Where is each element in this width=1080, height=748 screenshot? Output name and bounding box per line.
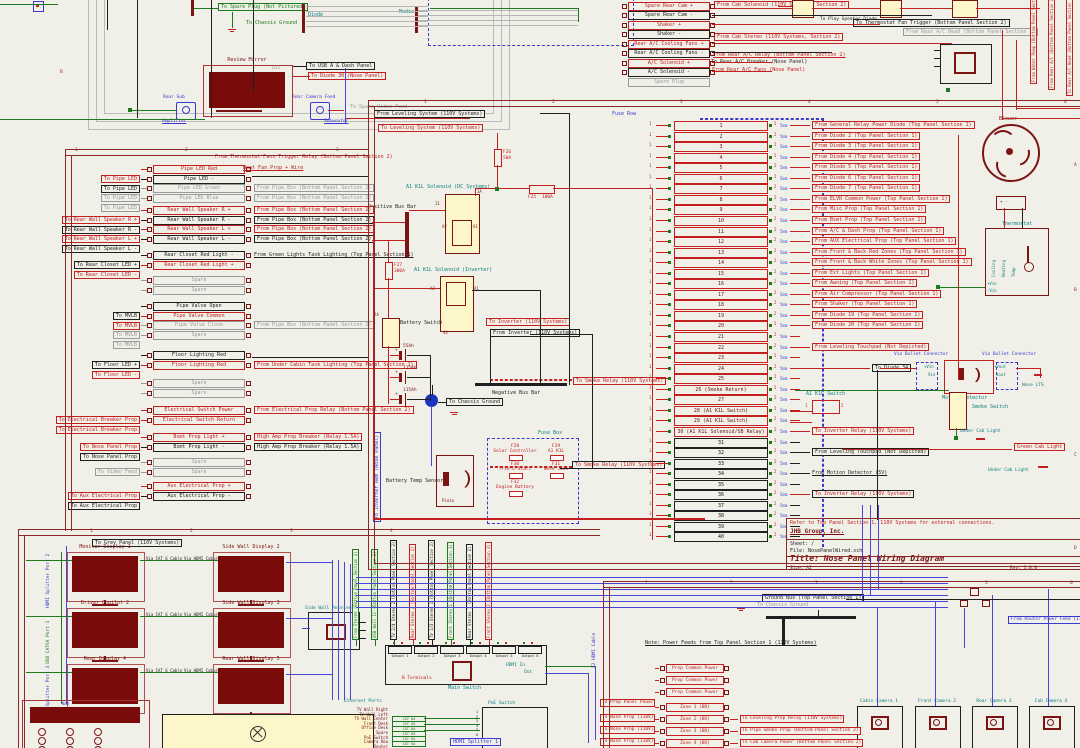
connector-pin-icon bbox=[182, 106, 190, 114]
wire bbox=[1002, 118, 1080, 119]
wire bbox=[356, 607, 948, 608]
camera-lens-icon bbox=[1047, 719, 1054, 726]
pin-number: 2 bbox=[774, 258, 776, 263]
pin bbox=[724, 741, 729, 746]
terminal-box: Rear Wall Speaker R + bbox=[153, 206, 245, 215]
pin bbox=[769, 314, 772, 317]
wire-gauge: 5mm bbox=[780, 334, 787, 339]
coil bbox=[452, 220, 472, 246]
fuse-terminal: 8 bbox=[674, 195, 768, 205]
wire bbox=[790, 515, 800, 516]
wire-gauge: 5mm bbox=[780, 355, 787, 360]
pin bbox=[668, 240, 671, 243]
pin-number: 2 bbox=[774, 184, 776, 189]
global-label-usb: To USB A & Dash Panel bbox=[306, 62, 375, 70]
global-label: From Pipe Box (Bottom Panel Section 2) bbox=[254, 225, 374, 233]
wire bbox=[656, 347, 668, 348]
terminal-box: Zone 4 (BR) bbox=[666, 739, 724, 748]
wire bbox=[656, 336, 668, 337]
wire bbox=[140, 560, 218, 561]
pin bbox=[660, 690, 665, 695]
component-label: PoE Switch bbox=[488, 701, 515, 707]
pin bbox=[769, 472, 772, 475]
component-ref: U12 bbox=[272, 66, 280, 72]
wire bbox=[790, 452, 810, 453]
wire bbox=[1022, 208, 1023, 228]
wire-gauge: 5mm bbox=[780, 313, 787, 318]
pin-number: 2 bbox=[774, 279, 776, 284]
pin bbox=[710, 32, 715, 37]
wire bbox=[338, 560, 339, 700]
global-label: From Diode 19 (Top Panel Section 1) bbox=[812, 311, 923, 319]
wire bbox=[656, 231, 668, 232]
pin bbox=[660, 705, 665, 710]
wire bbox=[388, 346, 389, 404]
global-label: From Cab Stereo (110V Systems, Section 2… bbox=[714, 33, 843, 41]
pin bbox=[660, 717, 665, 722]
wire bbox=[935, 601, 936, 706]
wire bbox=[934, 50, 940, 51]
pin bbox=[769, 293, 772, 296]
terminal-box: Spare bbox=[153, 286, 245, 295]
pin-number: 2 bbox=[774, 205, 776, 210]
sheet-border bbox=[368, 100, 369, 570]
pin bbox=[769, 177, 772, 180]
battery-plate bbox=[405, 349, 406, 362]
pin bbox=[246, 177, 251, 182]
terminal-box: Spare Plug bbox=[628, 78, 710, 87]
pin bbox=[668, 303, 671, 306]
camera-lens-icon bbox=[933, 719, 940, 726]
wire bbox=[656, 410, 668, 411]
terminal-box: A/C Solenoid + bbox=[628, 59, 710, 68]
pin-number: 6 bbox=[476, 733, 478, 737]
terminal-box: Aux Electrical Prop + bbox=[153, 482, 245, 491]
pin-number: 2 bbox=[774, 385, 776, 390]
wire bbox=[495, 187, 499, 191]
wire bbox=[211, 0, 212, 118]
wire bbox=[390, 355, 400, 356]
pin-label: +Vout bbox=[994, 364, 1006, 369]
wire bbox=[194, 8, 218, 9]
wire bbox=[656, 199, 668, 200]
wire bbox=[430, 355, 431, 401]
pin bbox=[147, 445, 152, 450]
ruler-number: B bbox=[1074, 288, 1077, 294]
wire bbox=[992, 595, 993, 706]
fuse-terminal: 10 bbox=[674, 216, 768, 226]
pin: 1A bbox=[477, 189, 482, 194]
sheet-border bbox=[603, 581, 604, 748]
connector-label: Rear Camera Feed bbox=[292, 95, 335, 101]
terminal-left-label: To Rear Closet LED - bbox=[0, 261, 140, 280]
cable-tag: CAT 6A bbox=[392, 741, 426, 747]
wire bbox=[790, 252, 810, 253]
fuse-terminal: 28 (A1 K1L Switch) bbox=[674, 406, 768, 416]
pin bbox=[668, 356, 671, 359]
fuse-box-label: Fuse Box bbox=[538, 430, 562, 436]
pin bbox=[471, 642, 473, 644]
pin bbox=[622, 61, 627, 66]
wire-gauge: 5mm bbox=[780, 281, 787, 286]
pin bbox=[668, 324, 671, 327]
pin bbox=[724, 717, 729, 722]
thermometer-icon bbox=[1027, 246, 1029, 263]
wire bbox=[530, 334, 592, 335]
pin bbox=[769, 230, 772, 233]
pin bbox=[246, 288, 251, 293]
global-label: From Front & Back White Zones (Top Panel… bbox=[812, 258, 972, 266]
terminal-box: Spare bbox=[153, 276, 245, 285]
global-label: To Floor LED - bbox=[92, 371, 140, 379]
ruler-number: A bbox=[1074, 163, 1077, 169]
sheet-border bbox=[603, 587, 1080, 588]
wire-gauge: 5mm bbox=[780, 366, 787, 371]
wire-gauge: 5mm bbox=[780, 492, 787, 497]
wire bbox=[790, 220, 810, 221]
pin-number: 2 bbox=[774, 459, 776, 464]
wire bbox=[877, 607, 878, 706]
wire bbox=[790, 526, 800, 527]
camera-label: Front Camera 2 bbox=[907, 699, 967, 704]
wire bbox=[790, 241, 810, 242]
monitor-screen bbox=[218, 612, 284, 648]
pin-number: 1 bbox=[649, 132, 651, 137]
connector-pin-icon bbox=[316, 106, 324, 114]
wire bbox=[350, 564, 351, 700]
wire bbox=[656, 357, 668, 358]
wire bbox=[569, 113, 570, 385]
ic-chip bbox=[954, 52, 976, 74]
wire bbox=[418, 25, 578, 26]
global-label: To Inverter Relay (110V Systems) bbox=[812, 427, 914, 435]
pin bbox=[246, 418, 251, 423]
pin bbox=[246, 218, 251, 223]
wire bbox=[388, 240, 389, 262]
pin-number: 2 bbox=[774, 195, 776, 200]
pin-number: 2 bbox=[774, 142, 776, 147]
wire bbox=[656, 157, 668, 158]
port-label: HDMI In bbox=[506, 663, 525, 669]
pin bbox=[769, 483, 772, 486]
global-label: Rear Stereo 1 (Bottom Panel Section 2) bbox=[466, 544, 473, 640]
touchpad-button bbox=[66, 728, 74, 736]
wire-gauge: 5mm bbox=[780, 271, 787, 276]
monitor-label: Monitor Display 1 bbox=[62, 544, 148, 550]
pin bbox=[479, 642, 481, 644]
terminal-box: Floor Lighting Red bbox=[153, 361, 245, 370]
fuse-row-outline bbox=[700, 118, 824, 120]
pin bbox=[769, 187, 772, 190]
pin bbox=[401, 642, 403, 644]
wire bbox=[730, 719, 738, 720]
wire bbox=[790, 167, 810, 168]
pin bbox=[147, 263, 152, 268]
wire-gauge: 5mm bbox=[780, 387, 787, 392]
pin bbox=[769, 124, 772, 127]
wire bbox=[1016, 368, 1040, 369]
pin: 11 bbox=[435, 201, 440, 206]
wire bbox=[356, 589, 948, 590]
global-label-to-inverter: To Inverter (110V Systems) bbox=[486, 318, 570, 326]
pin bbox=[660, 729, 665, 734]
wire bbox=[790, 157, 810, 158]
pin bbox=[419, 642, 421, 644]
wire bbox=[656, 368, 668, 369]
pin bbox=[622, 4, 627, 9]
fuse-terminal: 13 bbox=[674, 248, 768, 258]
global-label: To Aux Electrical Prop bbox=[68, 502, 140, 510]
terminal-left-label: To Floor LED - bbox=[0, 361, 140, 380]
wire-gauge: 5mm bbox=[780, 186, 787, 191]
pin bbox=[769, 419, 772, 422]
cable-label: X2 HDMI Cable bbox=[592, 633, 598, 668]
wire bbox=[373, 518, 705, 520]
global-label: From Pipe Box (Bottom Panel Section 2) bbox=[254, 184, 374, 192]
wire bbox=[790, 315, 810, 316]
label: From Rear A/C Fans (Nose Panel) bbox=[712, 67, 805, 73]
wire bbox=[655, 731, 659, 732]
pin bbox=[769, 367, 772, 370]
camera-label: Rear Camera 3 bbox=[964, 699, 1024, 704]
pin bbox=[147, 353, 152, 358]
sheet-border bbox=[71, 155, 72, 531]
a1k1l-switch bbox=[812, 400, 840, 414]
wire bbox=[655, 680, 659, 681]
pin bbox=[668, 208, 671, 211]
fuse-terminal: 36 bbox=[674, 490, 768, 500]
terminal-box: Rear Wall Speaker L - bbox=[153, 235, 245, 244]
monitor-screen bbox=[72, 668, 138, 704]
global-label: From Diode 2 (Top Panel Section 1) bbox=[812, 132, 920, 140]
wire bbox=[497, 165, 498, 189]
wire bbox=[128, 108, 132, 112]
fuse-value: 100A bbox=[542, 195, 553, 201]
fuse-ref: F26 bbox=[503, 150, 511, 156]
sheet-border bbox=[65, 149, 368, 150]
wire bbox=[540, 290, 541, 385]
terminal-box: Spare bbox=[153, 458, 245, 467]
pin-number: 2 bbox=[774, 406, 776, 411]
coil bbox=[446, 282, 466, 306]
wire bbox=[656, 484, 668, 485]
wire bbox=[846, 599, 1080, 600]
wire bbox=[790, 357, 800, 358]
dashed-wire bbox=[490, 379, 572, 381]
global-label: From Diode 4 (Top Panel Section 1) bbox=[812, 153, 920, 161]
pin bbox=[147, 408, 152, 413]
wire-gauge: 5mm bbox=[780, 218, 787, 223]
pin-number: 1 bbox=[649, 153, 651, 158]
wire bbox=[306, 6, 428, 7]
fuse-name: Engine Battery bbox=[487, 485, 543, 490]
wire bbox=[877, 370, 878, 520]
wire bbox=[475, 188, 476, 196]
wire bbox=[375, 640, 376, 646]
monitor-detail bbox=[216, 110, 262, 112]
wire bbox=[790, 325, 810, 326]
wire bbox=[1016, 108, 1080, 109]
monitor-screen bbox=[209, 72, 285, 108]
pin bbox=[427, 642, 429, 644]
wire bbox=[61, 552, 62, 704]
fuse-terminal: 5 bbox=[674, 163, 768, 173]
wire bbox=[934, 58, 940, 59]
wire bbox=[344, 562, 345, 700]
global-label: To Leveling System (110V Systems) bbox=[378, 124, 483, 132]
global-label: To Inverter Relay (110V Systems) bbox=[812, 490, 914, 498]
wire bbox=[656, 304, 668, 305]
sheet-border bbox=[18, 529, 600, 530]
pin bbox=[769, 504, 772, 507]
wire bbox=[790, 231, 810, 232]
terminal-box: Bsmt Prop Light + bbox=[153, 433, 245, 442]
pin bbox=[668, 282, 671, 285]
pin bbox=[724, 705, 729, 710]
pin bbox=[769, 493, 772, 496]
fuse-terminal: 25 bbox=[674, 374, 768, 384]
terminal-box: Electrical Switch Return bbox=[153, 416, 245, 425]
global-label: From Air Compressor (Top Panel Section 1… bbox=[812, 290, 941, 298]
wire bbox=[880, 368, 916, 369]
wire bbox=[812, 8, 880, 9]
wire bbox=[842, 449, 1012, 450]
fuse-terminal: 18 bbox=[674, 300, 768, 310]
wire bbox=[0, 119, 205, 120]
pin bbox=[622, 42, 627, 47]
pin bbox=[147, 363, 152, 368]
terminal-box: Electrical Switch Power bbox=[153, 406, 245, 415]
pin bbox=[668, 472, 671, 475]
wire bbox=[390, 377, 400, 378]
wire bbox=[656, 241, 668, 242]
sheet-border bbox=[65, 155, 368, 156]
component-label: Under Cab Light bbox=[988, 468, 1029, 474]
fuse-terminal: 16 bbox=[674, 279, 768, 289]
wire bbox=[934, 66, 940, 67]
pin bbox=[668, 462, 671, 465]
pin bbox=[147, 177, 152, 182]
wire-gauge: 5mm bbox=[780, 302, 787, 307]
pin bbox=[246, 196, 251, 201]
pin bbox=[668, 314, 671, 317]
wire bbox=[938, 287, 985, 288]
schematic-canvas: To Spare Plug (Not Pictured) To Chassis … bbox=[0, 0, 1080, 748]
wire bbox=[730, 743, 738, 744]
wire bbox=[790, 199, 810, 200]
terminal-box: Zone 2 (BR) bbox=[666, 715, 724, 724]
component-label: A1 K1L Solenoid (Inverter) bbox=[414, 267, 492, 273]
terminal-box: A/C Solenoid - bbox=[628, 68, 710, 77]
fuse-terminal: 17 bbox=[674, 290, 768, 300]
fuse-ref: F25 bbox=[528, 195, 536, 201]
ground-symbol bbox=[737, 608, 745, 609]
wire bbox=[592, 334, 593, 468]
pin-number: 3 bbox=[476, 719, 478, 723]
pin bbox=[453, 642, 455, 644]
global-label: To Thermostat Fan Trigger (Bottom Panel … bbox=[853, 19, 1010, 27]
wire bbox=[655, 743, 659, 744]
wire bbox=[656, 526, 668, 527]
access-point-icon bbox=[960, 600, 968, 607]
wire bbox=[356, 601, 948, 602]
fuse-terminal: 20 bbox=[674, 321, 768, 331]
pin bbox=[246, 304, 251, 309]
pin bbox=[769, 514, 772, 517]
pin-number: 2 bbox=[774, 511, 776, 516]
pin bbox=[668, 419, 671, 422]
global-label: From Leveling System (110V Systems) bbox=[374, 110, 485, 118]
pin-number: 2 bbox=[774, 153, 776, 158]
pin bbox=[246, 381, 251, 386]
wire bbox=[375, 288, 440, 289]
wire bbox=[578, 8, 579, 22]
sheet-border bbox=[374, 106, 375, 564]
wire bbox=[424, 724, 480, 725]
pin-label: +Vin bbox=[924, 364, 934, 369]
component-label: Battery Switch bbox=[400, 320, 442, 326]
pin bbox=[622, 70, 627, 75]
pin bbox=[769, 324, 772, 327]
terminal-box: Spare bbox=[153, 331, 245, 340]
company-name: JHB Group, Inc. bbox=[790, 529, 844, 535]
global-label: To Leveling Prop Relay (110V Systems) bbox=[740, 715, 844, 723]
wire bbox=[656, 294, 668, 295]
wire bbox=[712, 52, 832, 53]
component-label: Main Switch bbox=[448, 685, 481, 691]
wire bbox=[588, 673, 589, 743]
terminal-box: Pipe Valve Close bbox=[153, 321, 245, 330]
pin bbox=[668, 377, 671, 380]
wire bbox=[712, 24, 880, 25]
global-label-diode30: To Diode 30 (Nose Panel) bbox=[308, 72, 386, 80]
pin bbox=[622, 23, 627, 28]
pin bbox=[668, 504, 671, 507]
wire bbox=[766, 616, 856, 619]
fuse-row-outline bbox=[822, 118, 824, 547]
fuse-ref: F27 bbox=[394, 263, 402, 269]
pin bbox=[531, 642, 533, 644]
connector-label: Rear Sub bbox=[163, 95, 185, 101]
pin bbox=[246, 314, 251, 319]
wire-gauge: 5mm bbox=[780, 345, 787, 350]
wire bbox=[490, 332, 491, 383]
wire-gauge: 5mm bbox=[780, 429, 787, 434]
terminal-box: Aux Electrical Prop - bbox=[153, 492, 245, 501]
pin bbox=[668, 230, 671, 233]
wire bbox=[409, 210, 445, 211]
monitor-label: Side Wall Display 2 bbox=[208, 544, 294, 550]
fuse-terminal: 34 bbox=[674, 469, 768, 479]
global-label: From ELVR Common Power (Top Panel Sectio… bbox=[812, 195, 950, 203]
pin bbox=[668, 367, 671, 370]
wire bbox=[472, 290, 540, 291]
pin bbox=[769, 166, 772, 169]
wire bbox=[712, 71, 772, 72]
pin bbox=[246, 167, 251, 172]
terminal-box: Shaker + bbox=[628, 21, 710, 30]
switch-ic bbox=[452, 661, 472, 681]
pin-number: 2 bbox=[774, 269, 776, 274]
terminal-box: Spare bbox=[153, 379, 245, 388]
pin bbox=[769, 198, 772, 201]
pin-label: Vout bbox=[996, 372, 1006, 377]
terminal-box: Pipe Valve Common bbox=[153, 312, 245, 321]
pin-number: 2 bbox=[774, 522, 776, 527]
pin bbox=[622, 51, 627, 56]
fuse-terminal: 21 bbox=[674, 332, 768, 342]
wire bbox=[790, 536, 800, 537]
